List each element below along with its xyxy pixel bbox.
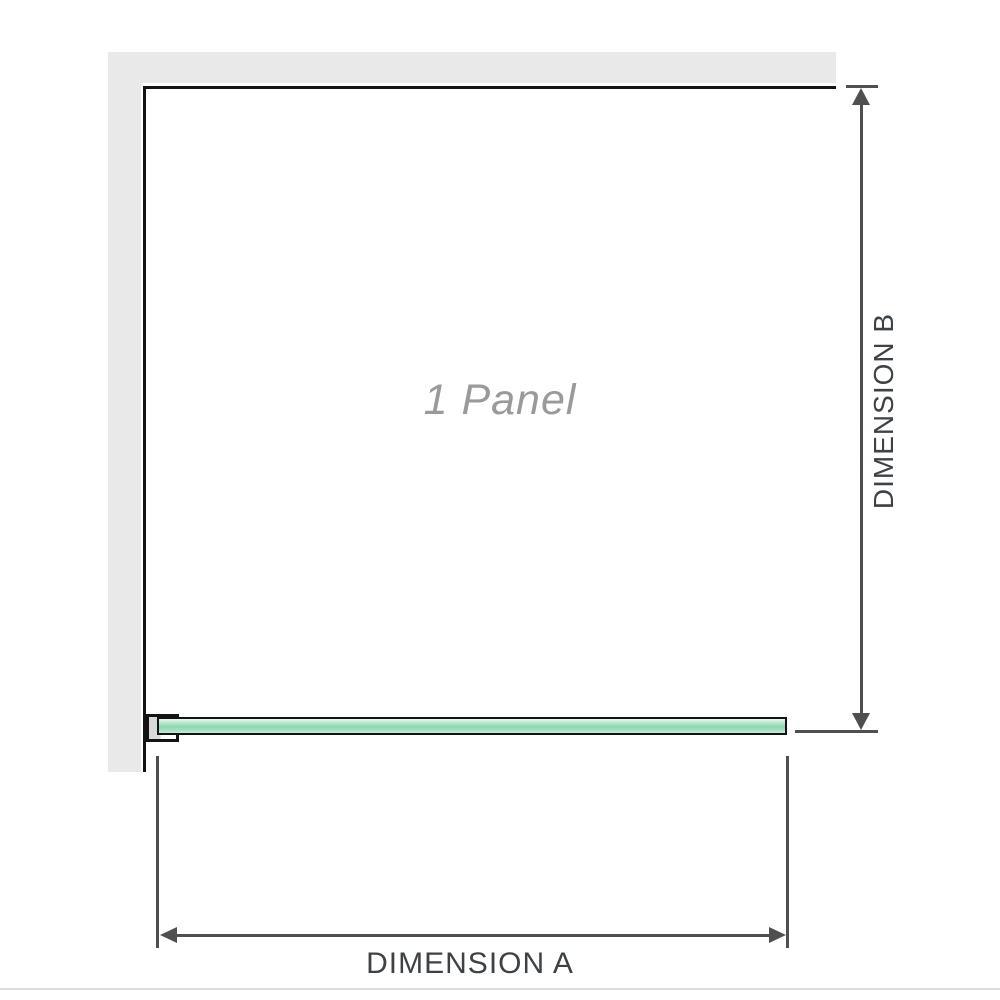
arrow-right-icon — [769, 927, 786, 943]
dimension-a-right-extension — [786, 756, 789, 948]
arrow-down-icon — [852, 713, 870, 730]
panel-left-edge-line — [143, 86, 146, 772]
arrow-up-icon — [852, 88, 870, 105]
dimension-a-label: DIMENSION A — [320, 946, 620, 982]
glass-panel-top-view — [157, 717, 787, 735]
dimension-a-left-extension — [156, 756, 159, 948]
dimension-b-bottom-tick — [795, 730, 878, 733]
panel-top-edge-line — [143, 86, 836, 89]
dimension-b-line — [860, 95, 863, 720]
bottom-divider-line — [0, 988, 1000, 990]
wall-left — [108, 52, 141, 772]
dimension-b-label: DIMENSION B — [869, 291, 899, 531]
shower-panel-dimension-diagram: 1 Panel DIMENSION B DIMENSION A — [0, 0, 1000, 1000]
panel-count-label: 1 Panel — [370, 370, 630, 430]
wall-top — [108, 52, 836, 83]
arrow-left-icon — [160, 927, 177, 943]
dimension-a-line — [170, 934, 776, 937]
